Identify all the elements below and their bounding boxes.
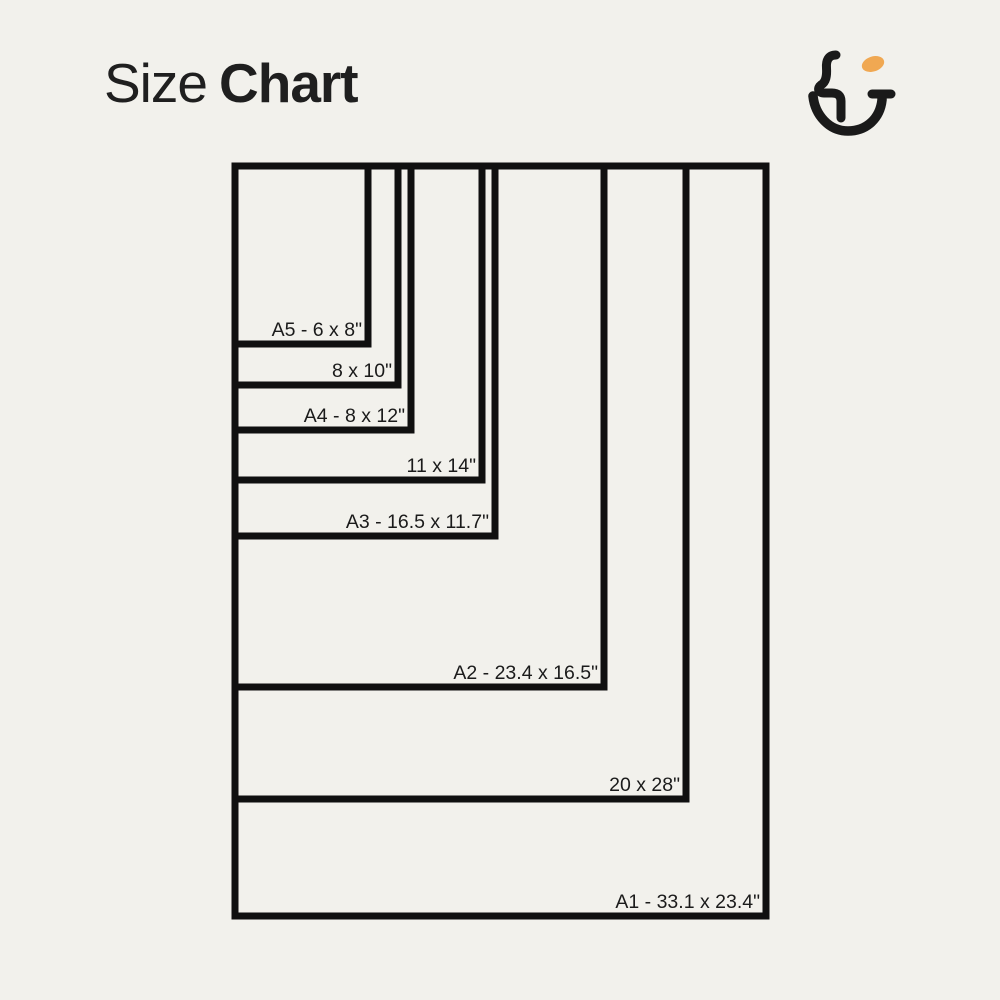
size-label-11x14: 11 x 14" — [407, 455, 477, 477]
size-label-a5: A5 - 6 x 8" — [272, 319, 362, 341]
size-rect-a4 — [235, 166, 411, 430]
page: SizeChart A1 - 33.1 x 23.4"20 x 28"A2 - … — [0, 0, 1000, 1000]
size-label-a3: A3 - 16.5 x 11.7" — [346, 511, 489, 533]
size-label-a2: A2 - 23.4 x 16.5" — [453, 662, 598, 684]
size-label-20x28: 20 x 28" — [609, 774, 680, 796]
size-rect-8x10 — [235, 166, 398, 385]
size-label-8x10: 8 x 10" — [332, 360, 392, 382]
size-rect-a5 — [235, 166, 368, 344]
size-label-a4: A4 - 8 x 12" — [304, 405, 405, 427]
size-chart-diagram: A1 - 33.1 x 23.4"20 x 28"A2 - 23.4 x 16.… — [0, 0, 1000, 1000]
size-label-a1: A1 - 33.1 x 23.4" — [615, 891, 760, 913]
